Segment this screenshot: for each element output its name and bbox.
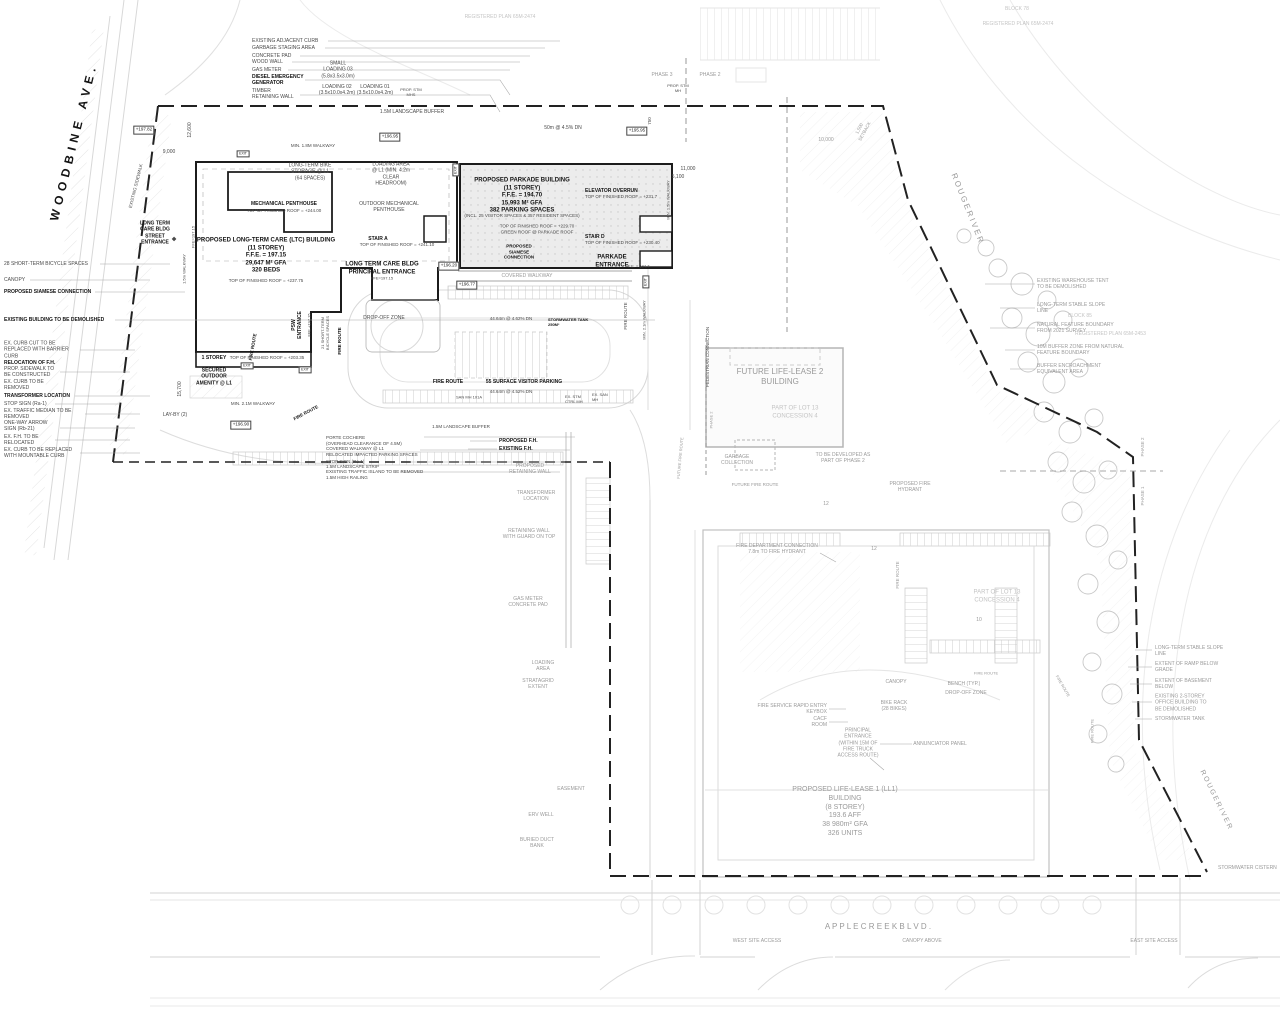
plan-label: FFE=197.15 xyxy=(371,276,393,281)
plan-label: ERV WELL xyxy=(528,812,553,818)
plan-label: LONG TERM CARE BLDG PRINCIPAL ENTRANCE xyxy=(345,262,418,277)
plan-label: TOP OF FINISHED ROOF = +203.35 xyxy=(230,355,305,361)
plan-label: REGISTERED PLAN 65M-2474 xyxy=(983,21,1054,27)
plan-label: PHASE 2 xyxy=(709,412,714,429)
plan-label: FIRE ROUTE xyxy=(623,302,629,329)
plan-label: MIN. 1.5m WALKWAY xyxy=(666,180,671,219)
plan-label: GARBAGE STAGING AREA xyxy=(252,45,315,51)
plan-label: BLOCK 85 xyxy=(1068,313,1092,319)
plan-label: PROPOSED FIRE HYDRANT xyxy=(889,481,930,494)
plan-label: LONG-TERM BIKE STORAGE @ L1 (64 SPACES) xyxy=(289,163,332,182)
plan-label: EXIT xyxy=(237,150,250,157)
plan-label: SAN MH 101A xyxy=(456,395,482,400)
site-plan: WOODBINE AVE.A P P L E C R E E K B L V D… xyxy=(0,0,1280,1021)
plan-label: ANNUNCIATOR PANEL xyxy=(913,741,967,747)
plan-label: TIMBER RETAINING WALL xyxy=(252,88,294,101)
plan-label: TRANSFORMER LOCATION xyxy=(517,490,556,503)
plan-label: BENCH (TYP.) xyxy=(948,681,981,687)
plan-label: 21 SHORT-TERM BICYCLE SPACES xyxy=(320,316,330,350)
plan-label: MIN. 2.1m WALKWAY xyxy=(642,300,647,339)
plan-label: 12 xyxy=(871,546,877,552)
plan-label: +196.95 xyxy=(379,133,400,142)
ll2-building-title: FUTURE LIFE-LEASE 2 BUILDING xyxy=(737,367,824,387)
plan-label: DROP-OFF ZONE xyxy=(945,690,986,696)
plan-label: LAY-BY (2) xyxy=(163,412,187,418)
plan-label: STAIR A xyxy=(368,236,387,242)
plan-label: PART OF LOT 13 CONCESSION 4 xyxy=(974,590,1021,605)
plan-label: 55 SURFACE VISITOR PARKING xyxy=(486,379,562,385)
plan-label: EXTENT OF RAMP BELOW GRADE xyxy=(1155,661,1218,674)
plan-label: (INCL. 25 VISITOR SPACES & 357 RESIDENT … xyxy=(464,213,579,219)
plan-label: PSW ENTRANCE xyxy=(291,311,304,339)
plan-label: DROP-OFF ZONE xyxy=(363,315,404,321)
plan-label: LOADING 01 (3.5x10.0x4.2m) xyxy=(357,84,393,97)
plan-label: PEDESTRIAN CONNECTION xyxy=(705,327,711,387)
plan-label: +195.95 xyxy=(626,127,647,136)
plan-label: EX. F.H. TO BE RELOCATED xyxy=(4,434,39,447)
plan-label: LOADING AREA @ L1 (MIN. 4.2m CLEAR HEADR… xyxy=(372,162,410,187)
plan-label: 10M BUFFER ZONE FROM NATURAL FEATURE BOU… xyxy=(1037,344,1124,357)
plan-label: SECURED OUTDOOR AMENITY @ L1 xyxy=(196,368,232,387)
plan-label: EX. TRAFFIC MEDIAN TO BE REMOVED xyxy=(4,408,72,421)
plan-label: CACF ROOM xyxy=(811,716,827,729)
plan-label: CANOPY xyxy=(4,277,25,283)
plan-label: TOP OF FINISHED ROOF = +229.70 GREEN ROO… xyxy=(500,223,575,234)
plan-label: FFE +197.15 xyxy=(307,313,312,336)
plan-label: STAIR D xyxy=(585,234,605,240)
plan-label: TOP OF FINISHED ROOF = +241.10 xyxy=(360,242,435,248)
plan-label: EXISTING SIDEWALK xyxy=(128,163,144,208)
plan-label: ELEVATOR OVERRUN xyxy=(585,188,638,194)
plan-label: PROP. SIDEWALK TO BE CONSTRUCTED xyxy=(4,366,54,379)
plan-label: FIRE DEPARTMENT CONNECTION 7.8m TO FIRE … xyxy=(736,543,818,556)
street-name-apple-creek: A P P L E C R E E K B L V D . xyxy=(825,922,931,932)
plan-label: F.E. = 194.7 xyxy=(628,264,649,269)
plan-label: +197.82 xyxy=(133,126,154,135)
plan-label: REGISTERED PLAN 65M-2474 xyxy=(465,14,536,20)
plan-label: EXISTING 2-STOREY OFFICE BUILDING TO BE … xyxy=(1155,694,1207,713)
plan-label: MECHANICAL PENTHOUSE xyxy=(251,201,317,207)
plan-label: FIRE ROUTE xyxy=(974,671,998,676)
plan-label: 1.5M LANDSCAPE BUFFER xyxy=(380,109,444,115)
plan-label: BIKE RACK (28 BIKES) xyxy=(881,700,908,713)
plan-label: COVERED WALKWAY xyxy=(502,273,553,279)
plan-label: TOP OF FINISHED ROOF = +244.00 xyxy=(247,208,322,214)
plan-label: STOP SIGN (Ra-1) xyxy=(326,459,364,465)
plan-label: 9,000 xyxy=(163,149,176,155)
plan-label: 12 xyxy=(823,501,829,507)
plan-label: BURIED DUCT BANK xyxy=(520,837,554,850)
plan-label: PROPOSED SIAMESE CONNECTION xyxy=(504,244,534,261)
plan-label: FIRE ROUTE xyxy=(895,561,901,588)
plan-label: PORTE COCHERE (OVERHEAD CLEARANCE OF 4.5… xyxy=(326,435,418,458)
plan-label: DIESEL EMERGENCY GENERATOR xyxy=(252,74,304,87)
plan-label: RELOCATION OF F.H. xyxy=(4,360,55,366)
plan-label: EXISTING BUILDING TO BE DEMOLISHED xyxy=(4,317,104,323)
plan-label: NATURAL FEATURE BOUNDARY FROM 2021 SURVE… xyxy=(1037,322,1114,335)
rouge-river-label: R O U G E R I V E R xyxy=(1197,769,1233,831)
plan-label: GARBAGE COLLECTION xyxy=(721,454,753,467)
plan-label: BUFFER ENCROACHMENT EQUIVALENT AREA xyxy=(1037,363,1101,376)
plan-label: LOADING AREA xyxy=(532,660,555,673)
plan-label: STRATAGRID EXTENT xyxy=(522,678,553,691)
plan-label: FIRE ROUTE xyxy=(1090,719,1095,743)
plan-label: EX. CURB TO BE REMOVED xyxy=(4,379,44,392)
plan-label: EXIT xyxy=(241,362,254,369)
plan-label: REGISTERED PLAN 65M-2453 xyxy=(1075,331,1146,337)
plan-label: EX. SAN MH xyxy=(592,392,608,402)
plan-label: PROP. STM MH xyxy=(667,83,689,93)
plan-label: PART OF LOT 13 CONCESSION 4 xyxy=(772,406,819,421)
plan-label: 10 xyxy=(976,617,982,623)
plan-label: LONG TERM CARE BLDG STREET ENTRANCE xyxy=(140,221,170,246)
plan-label: EXISTING ADJACENT CURB xyxy=(252,38,318,44)
plan-label: SMALL LOADING 03 (5.8x3.5x3.0m) xyxy=(321,61,354,80)
plan-label: EX. CURB CUT TO BE REPLACED WITH BARRIER… xyxy=(4,341,69,360)
plan-label: EAST SITE ACCESS xyxy=(1130,938,1177,944)
plan-label: LOADING 02 (3.5x10.0x4.2m) xyxy=(319,84,355,97)
plan-label: STOP SIGN (Ra-1) xyxy=(4,401,47,407)
plan-label: 10,000 xyxy=(818,137,833,143)
plan-label: OUTDOOR MECHANICAL PENTHOUSE xyxy=(359,201,419,214)
plan-label: 28 SHORT-TERM BICYCLE SPACES xyxy=(4,261,88,267)
plan-label: 44.64m @ 4.52% DN xyxy=(490,389,533,395)
plan-label: CANOPY ABOVE xyxy=(902,938,941,944)
plan-label: 750 xyxy=(647,117,653,125)
plan-label: FIRE ROUTE xyxy=(337,327,343,354)
plan-label: FFE=197.15 xyxy=(191,226,196,248)
plan-label: 12,600 xyxy=(187,122,193,137)
plan-label: +196.90 xyxy=(230,421,251,430)
parkade-building-title: PROPOSED PARKADE BUILDING (11 STOREY) F.… xyxy=(474,177,570,215)
plan-label: WEST SITE ACCESS xyxy=(733,938,782,944)
plan-label: 5,100 xyxy=(672,174,685,180)
plan-label: EXIT xyxy=(642,276,649,289)
plan-label: CANOPY xyxy=(885,679,906,685)
plan-label: EASEMENT xyxy=(557,786,585,792)
rouge-river-label: R O U G E R I V E R xyxy=(949,172,986,244)
plan-label: TO BE DEVELOPED AS PART OF PHASE 2 xyxy=(816,452,871,465)
plan-label: ◆ xyxy=(172,236,177,244)
plan-label: PHASE 1 xyxy=(1140,486,1146,505)
plan-label: PHASE 3 xyxy=(651,72,672,78)
plan-label: FUTURE FIRE ROUTE xyxy=(676,437,685,479)
plan-label: +196.77 xyxy=(456,281,477,290)
plan-label: PROP. STM MHS xyxy=(400,87,422,97)
plan-label: EXIT xyxy=(452,164,459,177)
plan-label: PROPOSED RETAINING WALL xyxy=(509,463,551,476)
plan-label: BLOCK 78 xyxy=(1005,6,1029,12)
plan-label: EXIT xyxy=(299,366,312,373)
plan-label: WOOD WALL xyxy=(252,59,283,65)
plan-label: 44.64m @ 4.62% DN xyxy=(490,316,533,322)
plan-label: 1.5M LANDSCAPE STRIP xyxy=(326,464,379,470)
plan-label: LONG-TERM STABLE SLOPE LINE xyxy=(1155,645,1223,658)
plan-label: FUTURE FIRE ROUTE xyxy=(732,482,779,488)
ltc-building-title: PROPOSED LONG-TERM CARE (LTC) BUILDING (… xyxy=(197,237,335,275)
plan-label: PROPOSED SIAMESE CONNECTION xyxy=(4,289,91,295)
plan-label: LONG-TERM STABLE SLOPE LINE xyxy=(1037,302,1105,315)
plan-label: 15,700 xyxy=(177,381,183,396)
plan-label: FIRE SERVICE RAPID ENTRY KEYBOX xyxy=(757,703,827,716)
plan-label: MIN. 1.8M WALKWAY xyxy=(291,143,335,149)
plan-label: CONCRETE PAD xyxy=(252,53,291,59)
plan-label: 11,000 xyxy=(681,166,696,172)
plan-label: MIN. 2.1M WALKWAY xyxy=(231,401,275,407)
plan-label: PROPOSED F.H. xyxy=(499,438,538,444)
plan-label: RETAINING WALL WITH GUARD ON TOP xyxy=(503,528,556,541)
plan-label: TRANSFORMER LOCATION xyxy=(4,393,70,399)
plan-label: GAS METER CONCRETE PAD xyxy=(508,596,547,609)
plan-label: 1.5M LANDSCAPE BUFFER xyxy=(432,424,490,430)
plan-label: FIRE ROUTE xyxy=(433,379,463,385)
plan-label: EXISTING F.H. xyxy=(499,446,533,452)
ll1-building-title: PROPOSED LIFE-LEASE 1 (LL1) BUILDING (8 … xyxy=(792,786,897,839)
plan-label: FIRE ROUTE xyxy=(1055,674,1071,697)
plan-label: ONE-WAY ARROW SIGN (Rb-21) xyxy=(4,420,48,433)
plan-label: EXISTING TRAFFIC ISLAND TO BE REMOVED xyxy=(326,469,423,475)
plan-label: TOP OF FINISHED ROOF = +231.7 xyxy=(585,194,657,200)
plan-label: 1,500 SETBACK xyxy=(852,118,872,142)
plan-label: PHASE 2 xyxy=(699,72,720,78)
plan-label: TOP OF FINISHED ROOF = +230.40 xyxy=(585,240,660,246)
plan-labels-layer: WOODBINE AVE.A P P L E C R E E K B L V D… xyxy=(0,0,1280,1021)
plan-label: PARKADE ENTRANCE xyxy=(595,255,628,270)
plan-label: PHASE 2 xyxy=(1140,437,1146,456)
plan-label: 1.5M HIGH RAILING xyxy=(326,475,368,481)
plan-label: TOP OF FINISHED ROOF = +237.75 xyxy=(229,278,304,284)
plan-label: 1 STOREY xyxy=(202,355,227,361)
plan-label: FIRE ROUTE xyxy=(248,333,258,361)
plan-label: EXTENT OF BASEMENT BELOW xyxy=(1155,678,1212,691)
plan-label: EX. CURB TO BE REPLACED WITH MOUNTABLE C… xyxy=(4,447,72,460)
plan-label: 50m @ 4.5% DN xyxy=(544,125,582,131)
street-name-woodbine: WOODBINE AVE. xyxy=(47,61,101,222)
plan-label: STORMWATER CISTERN xyxy=(1218,865,1277,871)
plan-label: EXISTING WAREHOUSE TENT TO BE DEMOLISHED xyxy=(1037,278,1109,291)
plan-label: FIRE ROUTE xyxy=(293,404,320,422)
plan-label: EX. STM CTRL MH xyxy=(565,394,583,404)
plan-label: PRINCIPAL ENTRANCE (WITHIN 15M OF FIRE T… xyxy=(837,727,878,758)
plan-label: GAS METER xyxy=(252,67,281,73)
plan-label: STORMWATER TANK xyxy=(1155,716,1205,722)
plan-label: +196.20 xyxy=(438,262,459,271)
plan-label: 1.5m WALKWAY xyxy=(182,254,187,284)
plan-label: STORMWATER TANK 250M³ xyxy=(548,317,588,327)
